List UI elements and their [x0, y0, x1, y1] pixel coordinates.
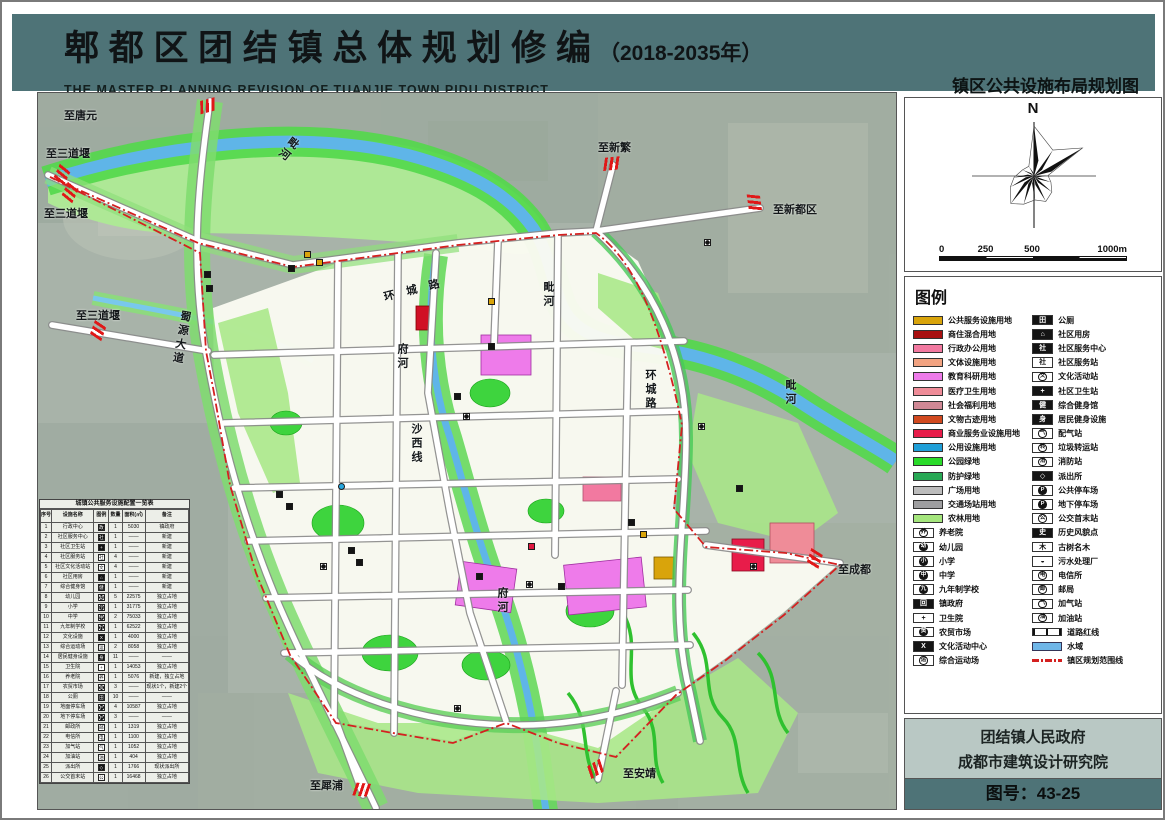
legend-label: 防护绿地 [948, 471, 980, 482]
table-row: 8幼儿园幼522575独立占地 [41, 593, 189, 603]
cell-name: 社区卫生站 [52, 543, 94, 553]
facility-icon: X [98, 634, 105, 641]
boundary-line-symbol [1032, 659, 1062, 662]
facility-table-title: 城镇公共服务设施配置一览表 [40, 500, 189, 509]
cell-qty: 1 [109, 773, 122, 783]
facility-icon: 邮 [98, 724, 105, 731]
cell-name: 加气站 [52, 743, 94, 753]
legend-label: 污水处理厂 [1058, 556, 1098, 567]
cell-no: 3 [41, 543, 52, 553]
header: 郫 都 区 团 结 镇 总 体 规 划 修 编 （2018-2035年） THE… [12, 14, 1155, 91]
land-use-swatch [913, 472, 943, 481]
cell-no: 7 [41, 583, 52, 593]
legend-item: 转垃圾转运站 [1032, 441, 1153, 455]
facility-icon: ⌂ [98, 574, 105, 581]
land-use-swatch [913, 316, 943, 325]
drawing-number: 图号：43-25 [904, 779, 1162, 810]
cell-note: 现状派出所 [145, 763, 188, 773]
legend-item: 社社区服务中心 [1032, 341, 1153, 355]
cell-area: 14053 [122, 663, 145, 673]
facility-icon: + [98, 544, 105, 551]
legend-label: 农林用地 [948, 513, 980, 524]
cell-icon: 文 [94, 563, 109, 573]
cell-area: 62522 [122, 623, 145, 633]
table-row: 18公厕田10———— [41, 693, 189, 703]
compass-scale-panel: N 02505001000m [904, 97, 1162, 272]
cell-note: 独立占地 [145, 613, 188, 623]
facility-icon: 幼 [98, 594, 105, 601]
cell-icon: P [94, 713, 109, 723]
facility-icon: 小 [98, 604, 105, 611]
legend-label: 幼儿园 [939, 542, 963, 553]
legend-symbol-icon: 邮 [1032, 584, 1053, 595]
cell-note: 新建 [145, 553, 188, 563]
legend-label: 公厕 [1058, 315, 1074, 326]
legend-label: 派出所 [1058, 471, 1082, 482]
legend-item: 幼幼儿园 [913, 540, 1026, 554]
legend-symbol-icon: 回 [913, 599, 934, 610]
legend-symbol-icon: 养 [913, 528, 934, 539]
cell-name: 卫生院 [52, 663, 94, 673]
legend-label: 医疗卫生用地 [948, 386, 996, 397]
legend-label: 古树名木 [1058, 542, 1090, 553]
cell-qty: 4 [109, 563, 122, 573]
legend-item: 镇区规划范围线 [1032, 654, 1153, 668]
cell-name: 行政中心 [52, 523, 94, 533]
facility-icon: 电 [98, 734, 105, 741]
cell-no: 20 [41, 713, 52, 723]
cell-area: 5030 [122, 523, 145, 533]
cell-area: —— [122, 533, 145, 543]
legend-symbol-icon: 气 [1032, 428, 1053, 439]
legend-symbol-icon: 幼 [913, 542, 934, 553]
legend-symbol-icon: 贸 [913, 627, 934, 638]
legend-item: 贸农贸市场 [913, 625, 1026, 639]
cell-area: 1052 [122, 743, 145, 753]
legend-label: 小学 [939, 556, 955, 567]
cell-note: 独立占地 [145, 743, 188, 753]
land-use-swatch [913, 401, 943, 410]
cell-area: —— [122, 563, 145, 573]
legend-item: 社社区服务站 [1032, 356, 1153, 370]
cell-note: 独立占地 [145, 663, 188, 673]
legend-symbol-icon: 木 [1032, 542, 1053, 553]
cell-note: 独立占地 [145, 643, 188, 653]
table-row: 20地下停车场P3———— [41, 713, 189, 723]
legend-item: 木古树名木 [1032, 540, 1153, 554]
cell-qty: 5 [109, 593, 122, 603]
land-use-swatch [913, 457, 943, 466]
cell-icon: 健 [94, 583, 109, 593]
cell-qty: 1 [109, 723, 122, 733]
facility-icon: ◇ [98, 764, 105, 771]
cell-name: 文化设施 [52, 633, 94, 643]
planning-sheet: 郫 都 区 团 结 镇 总 体 规 划 修 编 （2018-2035年） THE… [0, 0, 1165, 820]
cell-icon: + [94, 663, 109, 673]
sheet-name: 镇区公共设施布局规划图 [952, 72, 1139, 97]
legend-symbol-icon: 转 [1032, 443, 1053, 454]
facility-icon: 健 [98, 584, 105, 591]
facility-icon: 中 [98, 614, 105, 621]
facility-icon: 九 [98, 624, 105, 631]
legend-item: 公公交首末站 [1032, 512, 1153, 526]
legend-item: 广场用地 [913, 483, 1026, 497]
legend-label: 社会福利用地 [948, 400, 996, 411]
table-row: 21邮政所邮11319独立占地 [41, 723, 189, 733]
cell-icon: + [94, 543, 109, 553]
cell-note: 新建 [145, 563, 188, 573]
legend-symbol-icon: ◇ [1032, 471, 1053, 482]
cell-area: 16468 [122, 773, 145, 783]
cell-note: 独立占地 [145, 623, 188, 633]
facility-icon: 社 [98, 554, 105, 561]
cell-qty: 1 [109, 573, 122, 583]
planning-map: 至唐元至三道堰至三道堰至三道堰至新繁至新都区至成都至安靖至犀浦毗河毗河毗河府河府… [37, 92, 897, 810]
legend-label: 历史风貌点 [1058, 527, 1098, 538]
cell-qty: 1 [109, 743, 122, 753]
cell-area: 404 [122, 753, 145, 763]
facility-icon: 政 [98, 524, 105, 531]
cell-note: —— [145, 653, 188, 663]
cell-name: 综合运动场 [52, 643, 94, 653]
cell-name: 邮政所 [52, 723, 94, 733]
legend-item: 身居民健身设施 [1032, 412, 1153, 426]
cell-name: 电信所 [52, 733, 94, 743]
table-row: 9小学小131775独立占地 [41, 603, 189, 613]
legend-label: 社区服务站 [1058, 357, 1098, 368]
cell-icon: 社 [94, 553, 109, 563]
legend-symbol-icon: P [1032, 499, 1053, 510]
legend-label: 水域 [1067, 641, 1083, 652]
cell-name: 综合健身馆 [52, 583, 94, 593]
cell-qty: 1 [109, 603, 122, 613]
legend-symbol-icon: ⌂ [1032, 329, 1053, 340]
cell-no: 16 [41, 673, 52, 683]
legend-label: 公用设施用地 [948, 442, 996, 453]
legend-label: 加油站 [1058, 613, 1082, 624]
legend-label: 卫生院 [939, 613, 963, 624]
cell-icon: 身 [94, 653, 109, 663]
cell-icon: X [94, 633, 109, 643]
legend-symbol-icon: 中 [913, 570, 934, 581]
cell-area: 1766 [122, 763, 145, 773]
cell-area: —— [122, 693, 145, 703]
legend-item: 商住混合用地 [913, 327, 1026, 341]
cell-note: 新建，独立占地 [145, 673, 188, 683]
cell-no: 10 [41, 613, 52, 623]
cell-no: 9 [41, 603, 52, 613]
legend-symbol-icon: 身 [1032, 414, 1053, 425]
cell-no: 13 [41, 643, 52, 653]
cell-no: 23 [41, 743, 52, 753]
facility-icon: 养 [98, 674, 105, 681]
cell-area: —— [122, 543, 145, 553]
cell-qty: 3 [109, 683, 122, 693]
legend-item: 邮邮局 [1032, 583, 1153, 597]
cell-qty: 4 [109, 703, 122, 713]
cell-note: 新建 [145, 543, 188, 553]
cell-name: 社区文化活动站 [52, 563, 94, 573]
scale-bar: 02505001000m [939, 244, 1127, 261]
legend-item: 中中学 [913, 568, 1026, 582]
legend-label: 镇区规划范围线 [1067, 655, 1123, 666]
cell-icon: 贸 [94, 683, 109, 693]
cell-icon: ⌂ [94, 573, 109, 583]
facility-table: 城镇公共服务设施配置一览表 序号设施名称图例数量面积(㎡)备注1行政中心政150… [39, 499, 190, 784]
cell-icon: 邮 [94, 723, 109, 733]
cell-icon: 运 [94, 643, 109, 653]
legend-label: 社区卫生站 [1058, 386, 1098, 397]
cell-area: —— [122, 653, 145, 663]
legend-item: 油加油站 [1032, 611, 1153, 625]
cell-no: 4 [41, 553, 52, 563]
cell-no: 22 [41, 733, 52, 743]
cell-qty: 1 [109, 523, 122, 533]
legend-symbol-icon: 田 [1032, 315, 1053, 326]
cell-area: 75033 [122, 613, 145, 623]
legend-item: 教育科研用地 [913, 370, 1026, 384]
scale-label: 500 [1024, 244, 1040, 255]
cell-icon: 社 [94, 533, 109, 543]
cell-no: 26 [41, 773, 52, 783]
table-column-header: 备注 [145, 510, 188, 523]
cell-area: 22575 [122, 593, 145, 603]
legend-label: 文体设施用地 [948, 357, 996, 368]
table-row: 16养老院养15076新建，独立占地 [41, 673, 189, 683]
title-block: 团结镇人民政府 成都市建筑设计研究院 图号：43-25 [904, 718, 1162, 810]
cell-name: 九年制学校 [52, 623, 94, 633]
legend-item: 医疗卫生用地 [913, 384, 1026, 398]
cell-area: —— [122, 573, 145, 583]
cell-note: 独立占地 [145, 723, 188, 733]
legend-label: 公共停车场 [1058, 485, 1098, 496]
legend-item: 九九年制学校 [913, 583, 1026, 597]
legend-symbol-icon: 小 [913, 556, 934, 567]
table-row: 3社区卫生站+1——新建 [41, 543, 189, 553]
legend-item: 道路红线 [1032, 625, 1153, 639]
cell-icon: 公 [94, 773, 109, 783]
org-line2: 成都市建筑设计研究院 [905, 750, 1161, 775]
legend-label: 中学 [939, 570, 955, 581]
scale-label: 1000m [1097, 244, 1127, 255]
legend-panel: 图例 公共服务设施用地商住混合用地行政办公用地文体设施用地教育科研用地医疗卫生用… [904, 276, 1162, 714]
facility-icon: P [98, 714, 105, 721]
cell-no: 8 [41, 593, 52, 603]
legend-item: X文化活动中心 [913, 639, 1026, 653]
table-row: 23加气站气11052独立占地 [41, 743, 189, 753]
table-row: 26公交首末站公116468独立占地 [41, 773, 189, 783]
cell-icon: 气 [94, 743, 109, 753]
table-column-header: 数量 [109, 510, 122, 523]
cell-name: 社区服务中心 [52, 533, 94, 543]
legend-label: 公园绿地 [948, 456, 980, 467]
legend-item: 电电信所 [1032, 568, 1153, 582]
cell-name: 地面停车场 [52, 703, 94, 713]
cell-qty: 1 [109, 663, 122, 673]
cell-qty: 1 [109, 533, 122, 543]
cell-note: 独立占地 [145, 633, 188, 643]
cell-no: 18 [41, 693, 52, 703]
legend-label: 文化活动站 [1058, 371, 1098, 382]
cell-name: 地下停车场 [52, 713, 94, 723]
legend-item: P地下停车场 [1032, 497, 1153, 511]
legend-label: 综合运动场 [939, 655, 979, 666]
legend-item: 健综合健身馆 [1032, 398, 1153, 412]
cell-note: 新建 [145, 573, 188, 583]
legend-label: 电信所 [1058, 570, 1082, 581]
cell-no: 5 [41, 563, 52, 573]
facility-icon: 身 [98, 654, 105, 661]
land-use-swatch [913, 387, 943, 396]
land-use-swatch [913, 372, 943, 381]
cell-note: 独立占地 [145, 593, 188, 603]
facility-icon: 贸 [98, 684, 105, 691]
legend-item: 史历史风貌点 [1032, 526, 1153, 540]
legend-label: 加气站 [1058, 598, 1082, 609]
facility-icon: 运 [98, 644, 105, 651]
legend-symbol-icon: 公 [1032, 513, 1053, 524]
legend-label: 农贸市场 [939, 627, 971, 638]
cell-name: 幼儿园 [52, 593, 94, 603]
legend-label: 垃圾转运站 [1058, 442, 1098, 453]
legend-item: 商业服务业设施用地 [913, 427, 1026, 441]
cell-qty: 1 [109, 543, 122, 553]
table-row: 2社区服务中心社1——新建 [41, 533, 189, 543]
land-use-swatch [913, 486, 943, 495]
legend-item: +卫生院 [913, 611, 1026, 625]
cell-note: —— [145, 693, 188, 703]
cell-icon: P [94, 703, 109, 713]
table-row: 24加油站油1404独立占地 [41, 753, 189, 763]
cell-area: 8058 [122, 643, 145, 653]
legend-symbol-icon: 九 [913, 584, 934, 595]
legend-label: 商住混合用地 [948, 329, 996, 340]
table-column-header: 设施名称 [52, 510, 94, 523]
legend-item: 行政办公用地 [913, 341, 1026, 355]
cell-qty: 1 [109, 753, 122, 763]
legend-symbol-icon: P [1032, 485, 1053, 496]
cell-area: —— [122, 683, 145, 693]
cell-icon: 小 [94, 603, 109, 613]
facility-icon: + [98, 664, 105, 671]
legend-label: 邮局 [1058, 584, 1074, 595]
legend-label: 广场用地 [948, 485, 980, 496]
legend-label: 综合健身馆 [1058, 400, 1098, 411]
cell-note: 独立占地 [145, 773, 188, 783]
legend-item: ◒污水处理厂 [1032, 554, 1153, 568]
cell-name: 派出所 [52, 763, 94, 773]
facility-icon: 社 [98, 534, 105, 541]
cell-note: 镇政府 [145, 523, 188, 533]
facility-icon: 田 [98, 694, 105, 701]
legend-item: 公共服务设施用地 [913, 313, 1026, 327]
legend-item: 田公厕 [1032, 313, 1153, 327]
legend-item: 农林用地 [913, 512, 1026, 526]
legend-label: 居民健身设施 [1058, 414, 1106, 425]
cell-icon: 中 [94, 613, 109, 623]
cell-area: —— [122, 553, 145, 563]
table-row: 12文化设施X14000独立占地 [41, 633, 189, 643]
legend-label: 公交首末站 [1058, 513, 1098, 524]
table-column-header: 图例 [94, 510, 109, 523]
legend-symbol-icon: 文 [1032, 372, 1053, 383]
cell-no: 15 [41, 663, 52, 673]
cell-qty: 1 [109, 673, 122, 683]
table-column-header: 面积(㎡) [122, 510, 145, 523]
page-title-years: （2018-2035年） [599, 37, 762, 67]
cell-note: 独立占地 [145, 733, 188, 743]
cell-note: 独立占地 [145, 603, 188, 613]
cell-no: 2 [41, 533, 52, 543]
legend-symbol-icon: 史 [1032, 528, 1053, 539]
cell-name: 公交首末站 [52, 773, 94, 783]
legend-symbol-icon: 油 [1032, 613, 1053, 624]
table-row: 19地面停车场P410587独立占地 [41, 703, 189, 713]
legend-symbol-icon: 气 [1032, 599, 1053, 610]
legend-symbol-icon: 健 [1032, 400, 1053, 411]
table-row: 7综合健身馆健1——新建 [41, 583, 189, 593]
table-header-row: 序号设施名称图例数量面积(㎡)备注 [41, 510, 189, 523]
table-row: 1行政中心政15030镇政府 [41, 523, 189, 533]
legend-label: 教育科研用地 [948, 371, 996, 382]
legend-label: 交通场站用地 [948, 499, 996, 510]
legend-label: 行政办公用地 [948, 343, 996, 354]
cell-name: 居民健身设施 [52, 653, 94, 663]
legend-label: 社区服务中心 [1058, 343, 1106, 354]
cell-no: 14 [41, 653, 52, 663]
cell-qty: 11 [109, 653, 122, 663]
legend-item: 文物古迹用地 [913, 412, 1026, 426]
cell-note: 独立占地 [145, 753, 188, 763]
cell-qty: 1 [109, 633, 122, 643]
facility-icon: 气 [98, 744, 105, 751]
cell-qty: 2 [109, 613, 122, 623]
table-row: 14居民健身设施身11———— [41, 653, 189, 663]
table-row: 17农贸市场贸3——现状1个，新建2个 [41, 683, 189, 693]
legend-symbol-icon: 电 [1032, 570, 1053, 581]
legend-symbol-icon: + [1032, 386, 1053, 397]
cell-qty: 1 [109, 733, 122, 743]
legend-item: 社会福利用地 [913, 398, 1026, 412]
legend-item: P公共停车场 [1032, 483, 1153, 497]
legend-title: 图例 [915, 284, 1153, 308]
legend-symbol-icon: 运 [913, 655, 934, 666]
water-swatch [1032, 642, 1062, 651]
cell-area: —— [122, 713, 145, 723]
cell-name: 加油站 [52, 753, 94, 763]
cell-qty: 2 [109, 643, 122, 653]
facility-icon: 油 [98, 754, 105, 761]
legend-item: 文体设施用地 [913, 356, 1026, 370]
legend-label: 地下停车场 [1058, 499, 1098, 510]
cell-note: 新建 [145, 583, 188, 593]
table-row: 4社区服务站社4——新建 [41, 553, 189, 563]
cell-icon: ◇ [94, 763, 109, 773]
legend-symbol-icon: ◒ [1032, 556, 1053, 567]
cell-area: 1319 [122, 723, 145, 733]
legend-label: 道路红线 [1067, 627, 1099, 638]
land-use-swatch [913, 429, 943, 438]
cell-qty: 1 [109, 623, 122, 633]
cell-area: 31775 [122, 603, 145, 613]
cell-area: 10587 [122, 703, 145, 713]
cell-qty: 4 [109, 553, 122, 563]
legend-label: 商业服务业设施用地 [948, 428, 1020, 439]
legend-item: 文文化活动站 [1032, 370, 1153, 384]
cell-name: 公厕 [52, 693, 94, 703]
cell-area: 4000 [122, 633, 145, 643]
cell-no: 19 [41, 703, 52, 713]
